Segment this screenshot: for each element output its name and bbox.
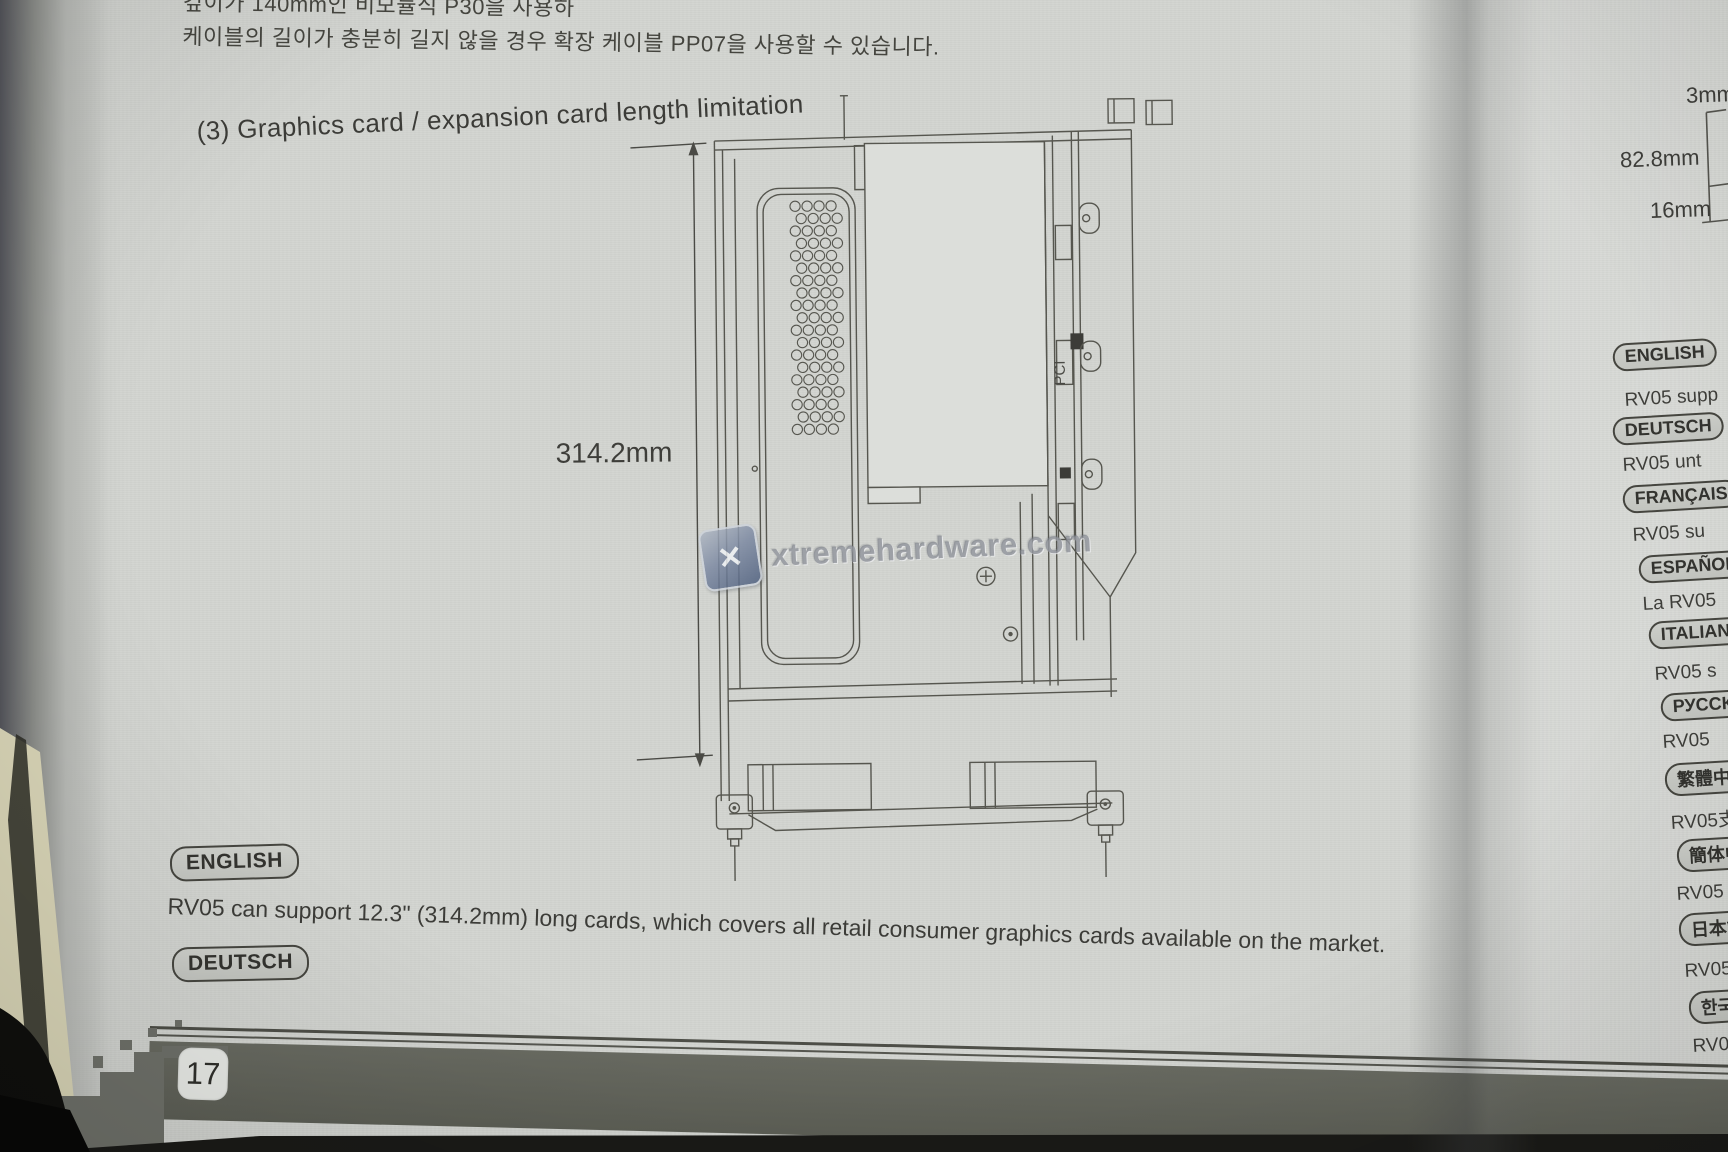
vent-panel (749, 188, 859, 665)
spine-artifact (120, 1040, 132, 1050)
spine-artifact (60, 1096, 102, 1152)
english-section-pill: ENGLISH (170, 843, 300, 882)
lang-pill-russian: РУССКИЙ (1660, 687, 1728, 721)
spine-artifact (175, 1020, 182, 1027)
case-side-diagram: 314.2mm (456, 84, 1188, 892)
lang-pill-korean: 한국어 (1688, 988, 1728, 1025)
lang-text-japanese: RV05 (1684, 958, 1728, 983)
manual-page-photo: 깊이가 140mm인 비모듈식 P30을 사용하 케이블의 길이가 충분히 길지… (0, 0, 1728, 1152)
dim-16mm: 16mm (1650, 196, 1712, 224)
lang-pill-italiano: ITALIANO (1648, 616, 1728, 650)
deutsch-section-pill: DEUTSCH (172, 945, 310, 983)
graphics-card (864, 142, 1050, 686)
pci-label: PCI (1052, 360, 1069, 385)
spine-artifact (148, 1028, 157, 1037)
lang-text-korean: RV0 (1692, 1034, 1728, 1058)
lang-text-deutsch: RV05 unt (1622, 450, 1702, 477)
watermark-logo-icon: ✕ (697, 523, 764, 593)
lang-text-simplified-chinese: RV05 (1676, 881, 1724, 906)
table-surface-wedge (0, 700, 110, 1152)
dimension-label-314mm: 314.2mm (555, 437, 672, 469)
lang-pill-espanol: ESPAÑOL (1638, 549, 1728, 583)
page-number-badge: 17 (177, 1047, 228, 1100)
lang-text-russian: RV05 (1662, 729, 1710, 754)
dim-3mm: 3mm (1686, 81, 1728, 109)
lang-text-traditional-chinese: RV05支 (1670, 804, 1728, 835)
dim-82-8mm: 82.8mm (1620, 145, 1700, 174)
lang-pill-traditional-chinese: 繁體中文 (1664, 758, 1728, 797)
screws (977, 567, 1018, 641)
lang-pill-japanese: 日本語 (1678, 909, 1728, 947)
spine-artifact (100, 1072, 136, 1152)
pci-bracket-column: PCI (1044, 131, 1087, 685)
lang-text-italiano: RV05 s (1654, 660, 1717, 686)
spine-artifact (134, 1052, 164, 1152)
case-base (715, 679, 1124, 881)
watermark-text: xtremehardware.com (771, 523, 1093, 574)
lang-text-espanol: La RV05 (1642, 590, 1717, 616)
lang-pill-simplified-chinese: 簡体中文 (1676, 834, 1728, 873)
spine-artifact (93, 1056, 103, 1068)
lang-text-francais: RV05 su (1632, 521, 1706, 547)
